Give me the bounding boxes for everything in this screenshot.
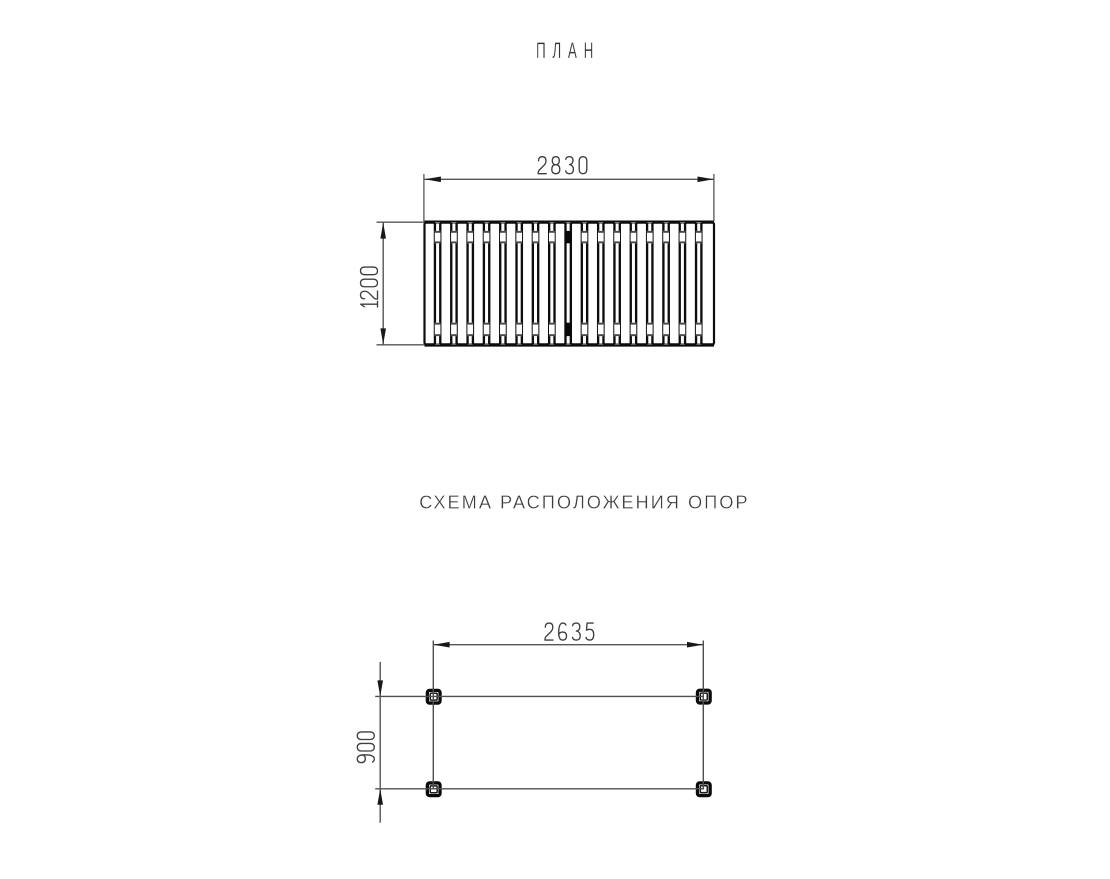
svg-text:СХЕМА РАСПОЛОЖЕНИЯ ОПОР: СХЕМА РАСПОЛОЖЕНИЯ ОПОР bbox=[419, 492, 749, 513]
svg-text:ПЛАН: ПЛАН bbox=[536, 39, 600, 63]
